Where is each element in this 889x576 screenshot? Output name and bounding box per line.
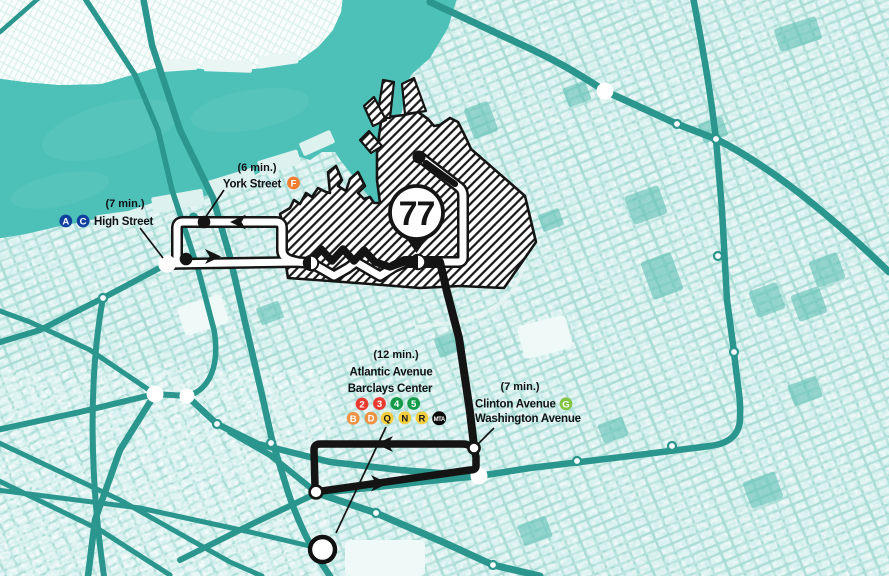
svg-text:4: 4 [394,399,400,410]
svg-text:3: 3 [377,399,382,410]
svg-text:(7 min.): (7 min.) [500,381,539,393]
svg-text:Atlantic Avenue: Atlantic Avenue [349,367,432,379]
svg-text:R: R [418,414,425,425]
svg-text:MTA: MTA [434,417,446,423]
svg-text:F: F [291,179,297,190]
svg-text:(7 min.): (7 min.) [105,198,144,210]
svg-text:N: N [401,413,408,424]
svg-text:Washington Avenue: Washington Avenue [475,413,581,425]
svg-text:A: A [62,217,69,228]
svg-text:Q: Q [384,414,391,425]
svg-text:Barclays Center: Barclays Center [348,383,433,395]
svg-text:77: 77 [399,195,435,233]
svg-text:High Street: High Street [94,216,154,228]
svg-text:York Street: York Street [223,179,282,191]
svg-text:Clinton Avenue: Clinton Avenue [475,399,556,411]
svg-text:(12 min.): (12 min.) [373,349,419,361]
svg-text:D: D [368,414,375,425]
svg-text:G: G [562,399,569,410]
svg-text:B: B [350,414,357,425]
svg-text:2: 2 [359,400,364,411]
svg-text:C: C [80,217,87,228]
svg-text:(6 min.): (6 min.) [237,162,276,174]
svg-text:5: 5 [411,399,417,410]
